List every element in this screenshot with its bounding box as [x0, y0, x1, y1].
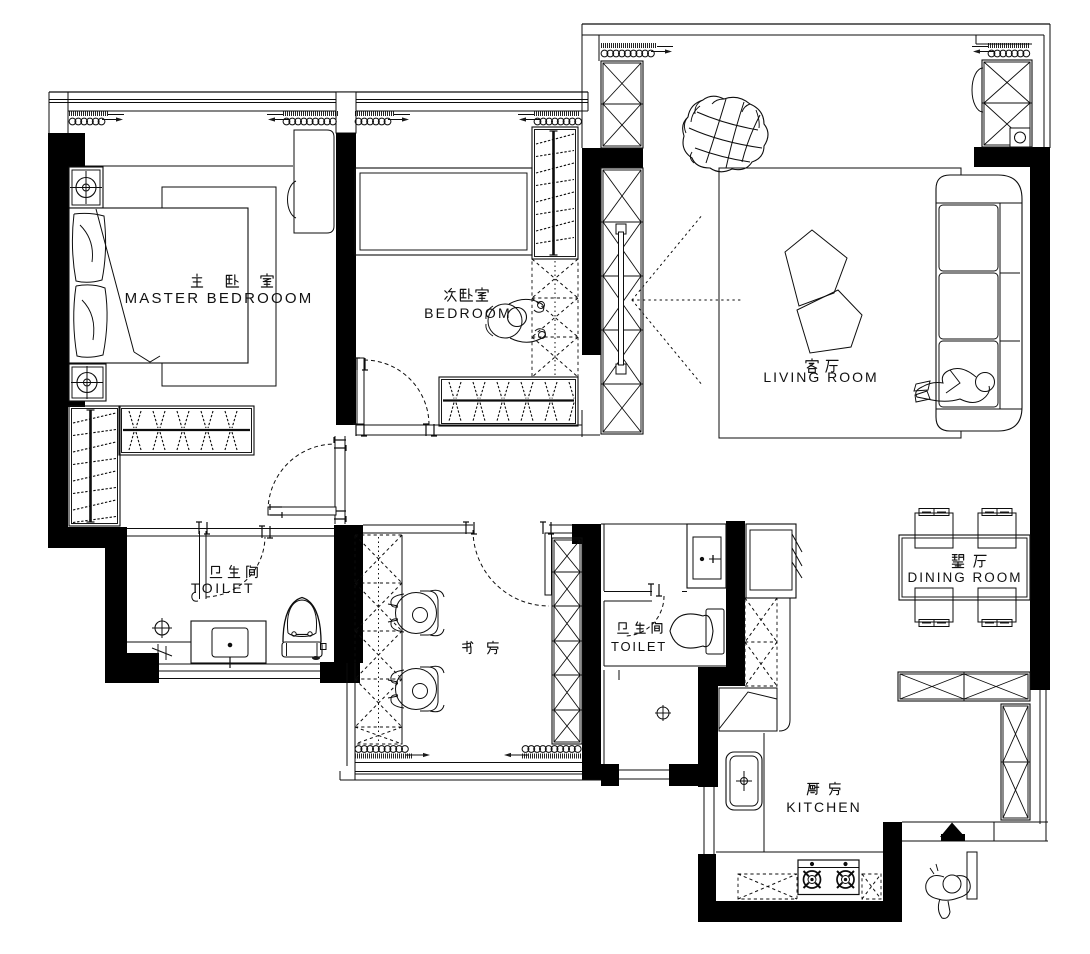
svg-text:DINING ROOM: DINING ROOM	[908, 570, 1023, 585]
svg-text:TOILET: TOILET	[611, 639, 667, 654]
svg-text:MASTER BEDROOOM: MASTER BEDROOOM	[125, 290, 314, 307]
svg-text:KITCHEN: KITCHEN	[786, 799, 861, 815]
svg-text:BEDROOM: BEDROOM	[424, 305, 512, 321]
svg-text:TOILET: TOILET	[191, 580, 255, 596]
svg-text:LIVING ROOM: LIVING ROOM	[763, 369, 878, 385]
